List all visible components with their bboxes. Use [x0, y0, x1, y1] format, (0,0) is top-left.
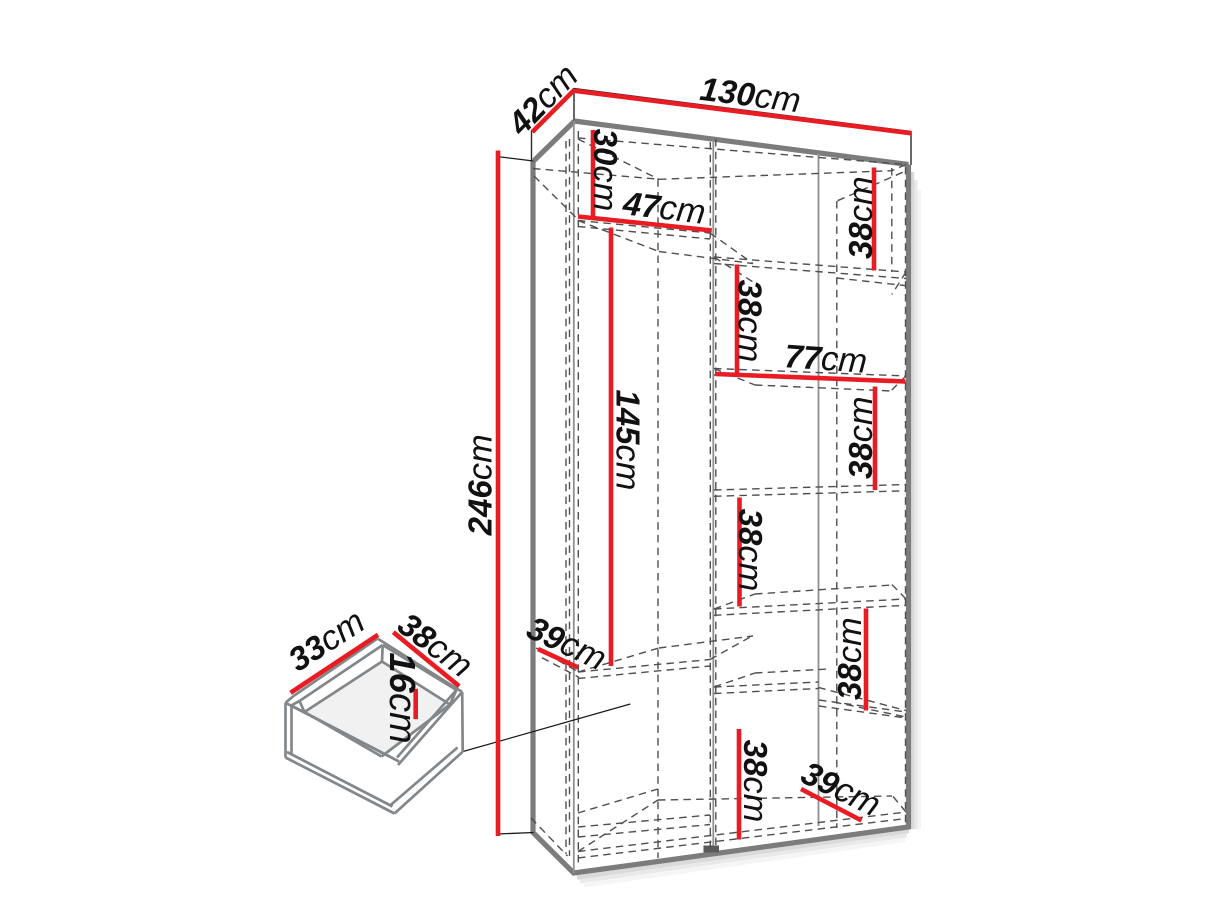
svg-text:38cm: 38cm: [731, 509, 769, 592]
svg-text:38cm: 38cm: [736, 740, 774, 823]
svg-text:47cm: 47cm: [620, 184, 708, 232]
svg-text:16cm: 16cm: [381, 652, 423, 743]
svg-text:30cm: 30cm: [586, 129, 624, 212]
svg-text:145cm: 145cm: [609, 389, 647, 490]
svg-text:38cm: 38cm: [842, 176, 880, 259]
svg-text:130cm: 130cm: [698, 70, 803, 121]
svg-text:246cm: 246cm: [462, 434, 500, 536]
svg-text:77cm: 77cm: [783, 337, 868, 381]
svg-text:38cm: 38cm: [831, 617, 869, 700]
svg-text:38cm: 38cm: [842, 396, 880, 479]
svg-text:42cm: 42cm: [500, 57, 586, 143]
svg-text:38cm: 38cm: [731, 280, 769, 363]
svg-text:39cm: 39cm: [795, 754, 886, 824]
